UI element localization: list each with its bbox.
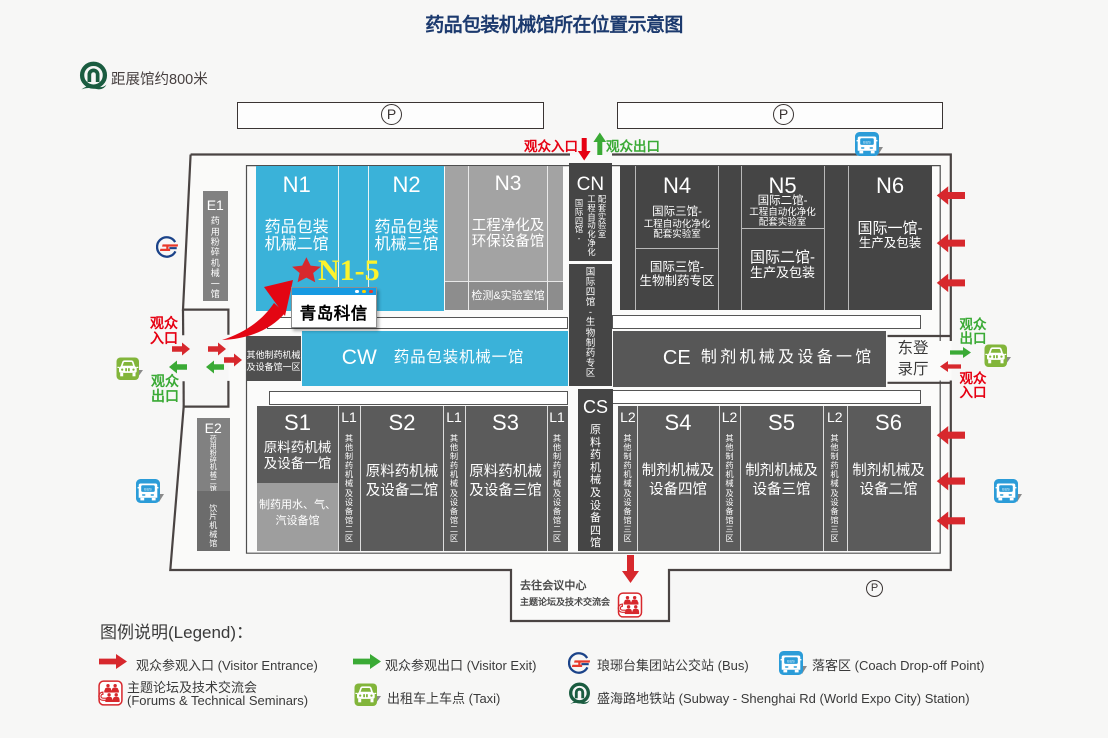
svg-text:BUS: BUS: [144, 487, 152, 491]
svg-text:BUS: BUS: [787, 659, 795, 663]
svg-text:BUS: BUS: [1002, 487, 1010, 491]
svg-text:BUS: BUS: [863, 140, 871, 144]
